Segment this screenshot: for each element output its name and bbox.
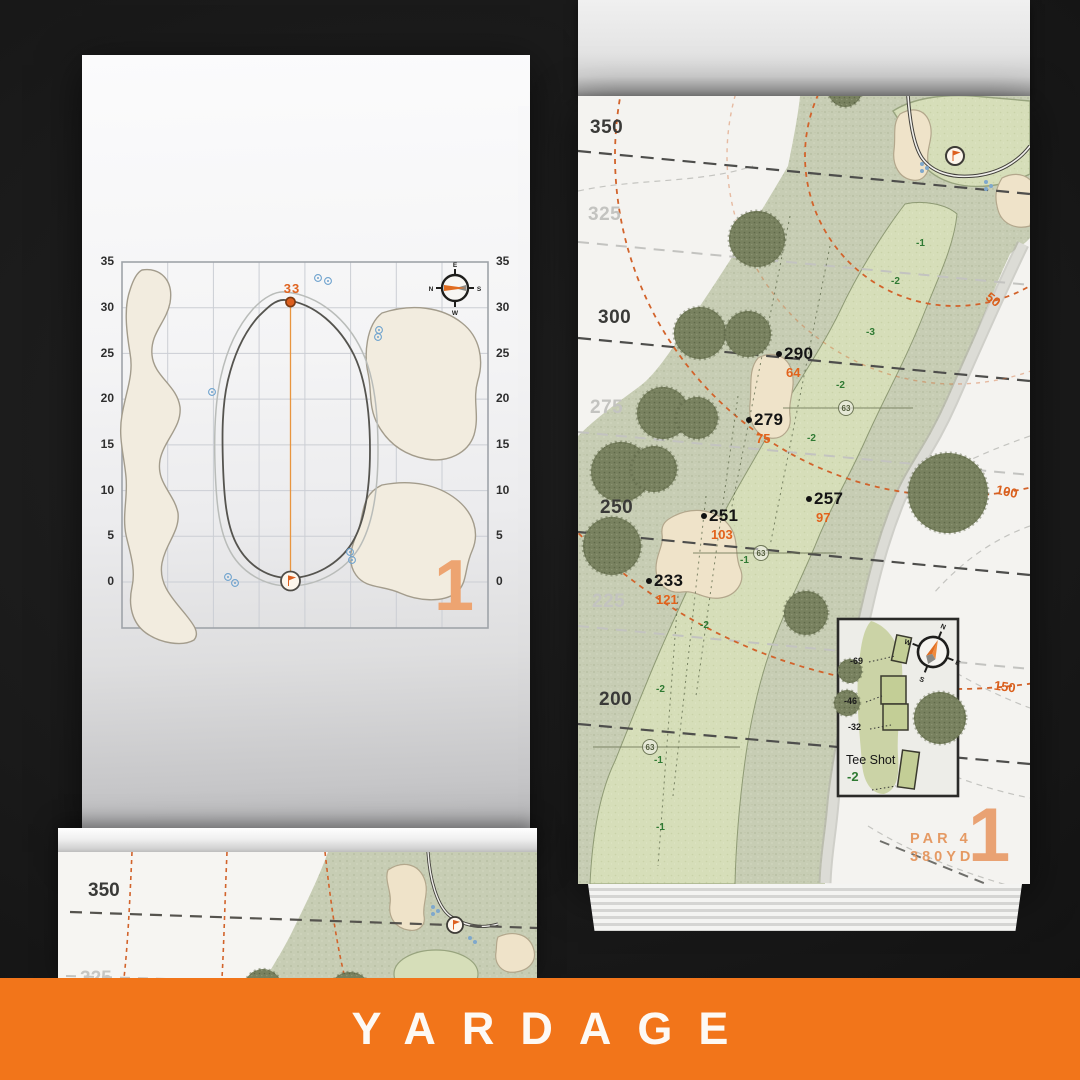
preview-map-art (58, 852, 537, 978)
compass-w-label: W (452, 310, 459, 317)
sprinkler-number-label: 63 (646, 743, 655, 752)
remaining-distance: 75 (756, 431, 770, 446)
compass-n-label: N (429, 286, 434, 293)
axis-tick: 5 (496, 528, 522, 542)
distance-label: 325 (588, 204, 621, 226)
carry-dot (646, 578, 652, 584)
remaining-distance: 121 (656, 592, 678, 607)
remaining-distance: 64 (786, 365, 800, 380)
tee-offset-label: -32 (848, 722, 861, 732)
tee-offset-label: -46 (844, 696, 857, 706)
tee-offset-label: -69 (850, 656, 863, 666)
distance-label: 250 (600, 497, 633, 519)
axis-tick: 30 (88, 300, 114, 314)
carry-distance: 279 (754, 410, 783, 430)
hole-map-page: N S W E 350 325 300 275 250 225 200 50 1… (578, 96, 1030, 884)
sprinkler-number-label: 63 (842, 404, 851, 413)
axis-tick: 20 (496, 391, 522, 405)
elevation-mark: -1 (740, 555, 749, 566)
pin-icon (447, 917, 463, 933)
carry-point: 233 121 (646, 571, 683, 609)
axis-tick: 30 (496, 300, 522, 314)
yardage-label: 380YD (910, 849, 974, 865)
elevation-mark: -2 (700, 620, 709, 631)
elevation-mark: -2 (656, 684, 665, 695)
carry-dot (806, 496, 812, 502)
tee-shot-elevation: -2 (847, 769, 859, 784)
arc-distance-label: 150 (993, 678, 1017, 696)
axis-tick: 35 (496, 254, 522, 268)
axis-tick: 0 (496, 574, 522, 588)
distance-label: 325 (80, 968, 112, 978)
carry-dot (776, 351, 782, 357)
sprinkler-number: 63 (753, 545, 769, 561)
elevation-mark: -1 (656, 822, 665, 833)
axis-tick: 5 (88, 528, 114, 542)
carry-point: 257 97 (806, 489, 843, 527)
carry-dot (701, 513, 707, 519)
tree (914, 692, 966, 744)
remaining-distance: 97 (816, 510, 830, 525)
compass-e-label: E (453, 262, 458, 269)
preview-hole-map: 350 325 (58, 852, 537, 978)
distance-label: 225 (592, 591, 625, 613)
tee-shot-title: Tee Shot (846, 753, 895, 767)
elevation-mark: -2 (836, 380, 845, 391)
yardage-banner: YARDAGE (0, 978, 1080, 1080)
distance-label: 200 (599, 689, 632, 711)
page-stack-edge (588, 884, 1022, 931)
distance-label: 350 (590, 117, 623, 139)
greenside-bunkers (121, 270, 481, 644)
axis-tick: 35 (88, 254, 114, 268)
axis-tick: 10 (496, 483, 522, 497)
sprinkler-number: 63 (642, 739, 658, 755)
pin-carry-distance: 33 (278, 281, 306, 296)
carry-distance: 251 (709, 506, 738, 526)
preview-booklet: 350 325 (58, 828, 537, 978)
carry-dot (746, 417, 752, 423)
carry-distance: 290 (784, 344, 813, 364)
compass-icon: E W N S (429, 262, 482, 317)
hole-number: 1 (434, 550, 474, 622)
elevation-mark: -2 (807, 433, 816, 444)
axis-tick: 0 (88, 574, 114, 588)
axis-tick: 20 (88, 391, 114, 405)
axis-tick: 15 (88, 437, 114, 451)
sprinkler-number: 63 (838, 400, 854, 416)
carry-point: 290 64 (776, 344, 813, 382)
distance-label: 275 (590, 397, 623, 419)
hole-number: 1 (968, 802, 1010, 870)
elevation-mark: -1 (916, 238, 925, 249)
elevation-mark: -2 (891, 276, 900, 287)
green-detail-page: E W N S 35 30 25 20 15 10 5 0 35 30 25 2… (82, 55, 530, 842)
axis-tick: 25 (88, 346, 114, 360)
distance-label: 300 (598, 307, 631, 329)
page-curl-edge (58, 828, 537, 852)
banner-title: YARDAGE (326, 1003, 755, 1055)
green-detail-map: E W N S (82, 55, 530, 842)
flipped-page-back (578, 0, 1030, 96)
axis-tick: 10 (88, 483, 114, 497)
axis-tick: 25 (496, 346, 522, 360)
compass-s-label: S (477, 286, 482, 293)
pin-icon (946, 147, 964, 165)
par-label: PAR 4 (910, 831, 972, 847)
carry-dot-33 (286, 297, 295, 306)
carry-point: 279 75 (746, 410, 783, 448)
carry-point: 251 103 (701, 506, 738, 544)
elevation-mark: -1 (654, 755, 663, 766)
poster-background: E W N S 35 30 25 20 15 10 5 0 35 30 25 2… (0, 0, 1080, 1080)
axis-tick: 15 (496, 437, 522, 451)
sprinkler-number-label: 63 (757, 549, 766, 558)
carry-distance: 257 (814, 489, 843, 509)
carry-distance: 233 (654, 571, 683, 591)
pin-icon (281, 572, 300, 591)
distance-label: 350 (88, 880, 120, 902)
remaining-distance: 103 (711, 527, 733, 542)
elevation-mark: -3 (866, 327, 875, 338)
hole-map: N S W E (578, 96, 1030, 884)
